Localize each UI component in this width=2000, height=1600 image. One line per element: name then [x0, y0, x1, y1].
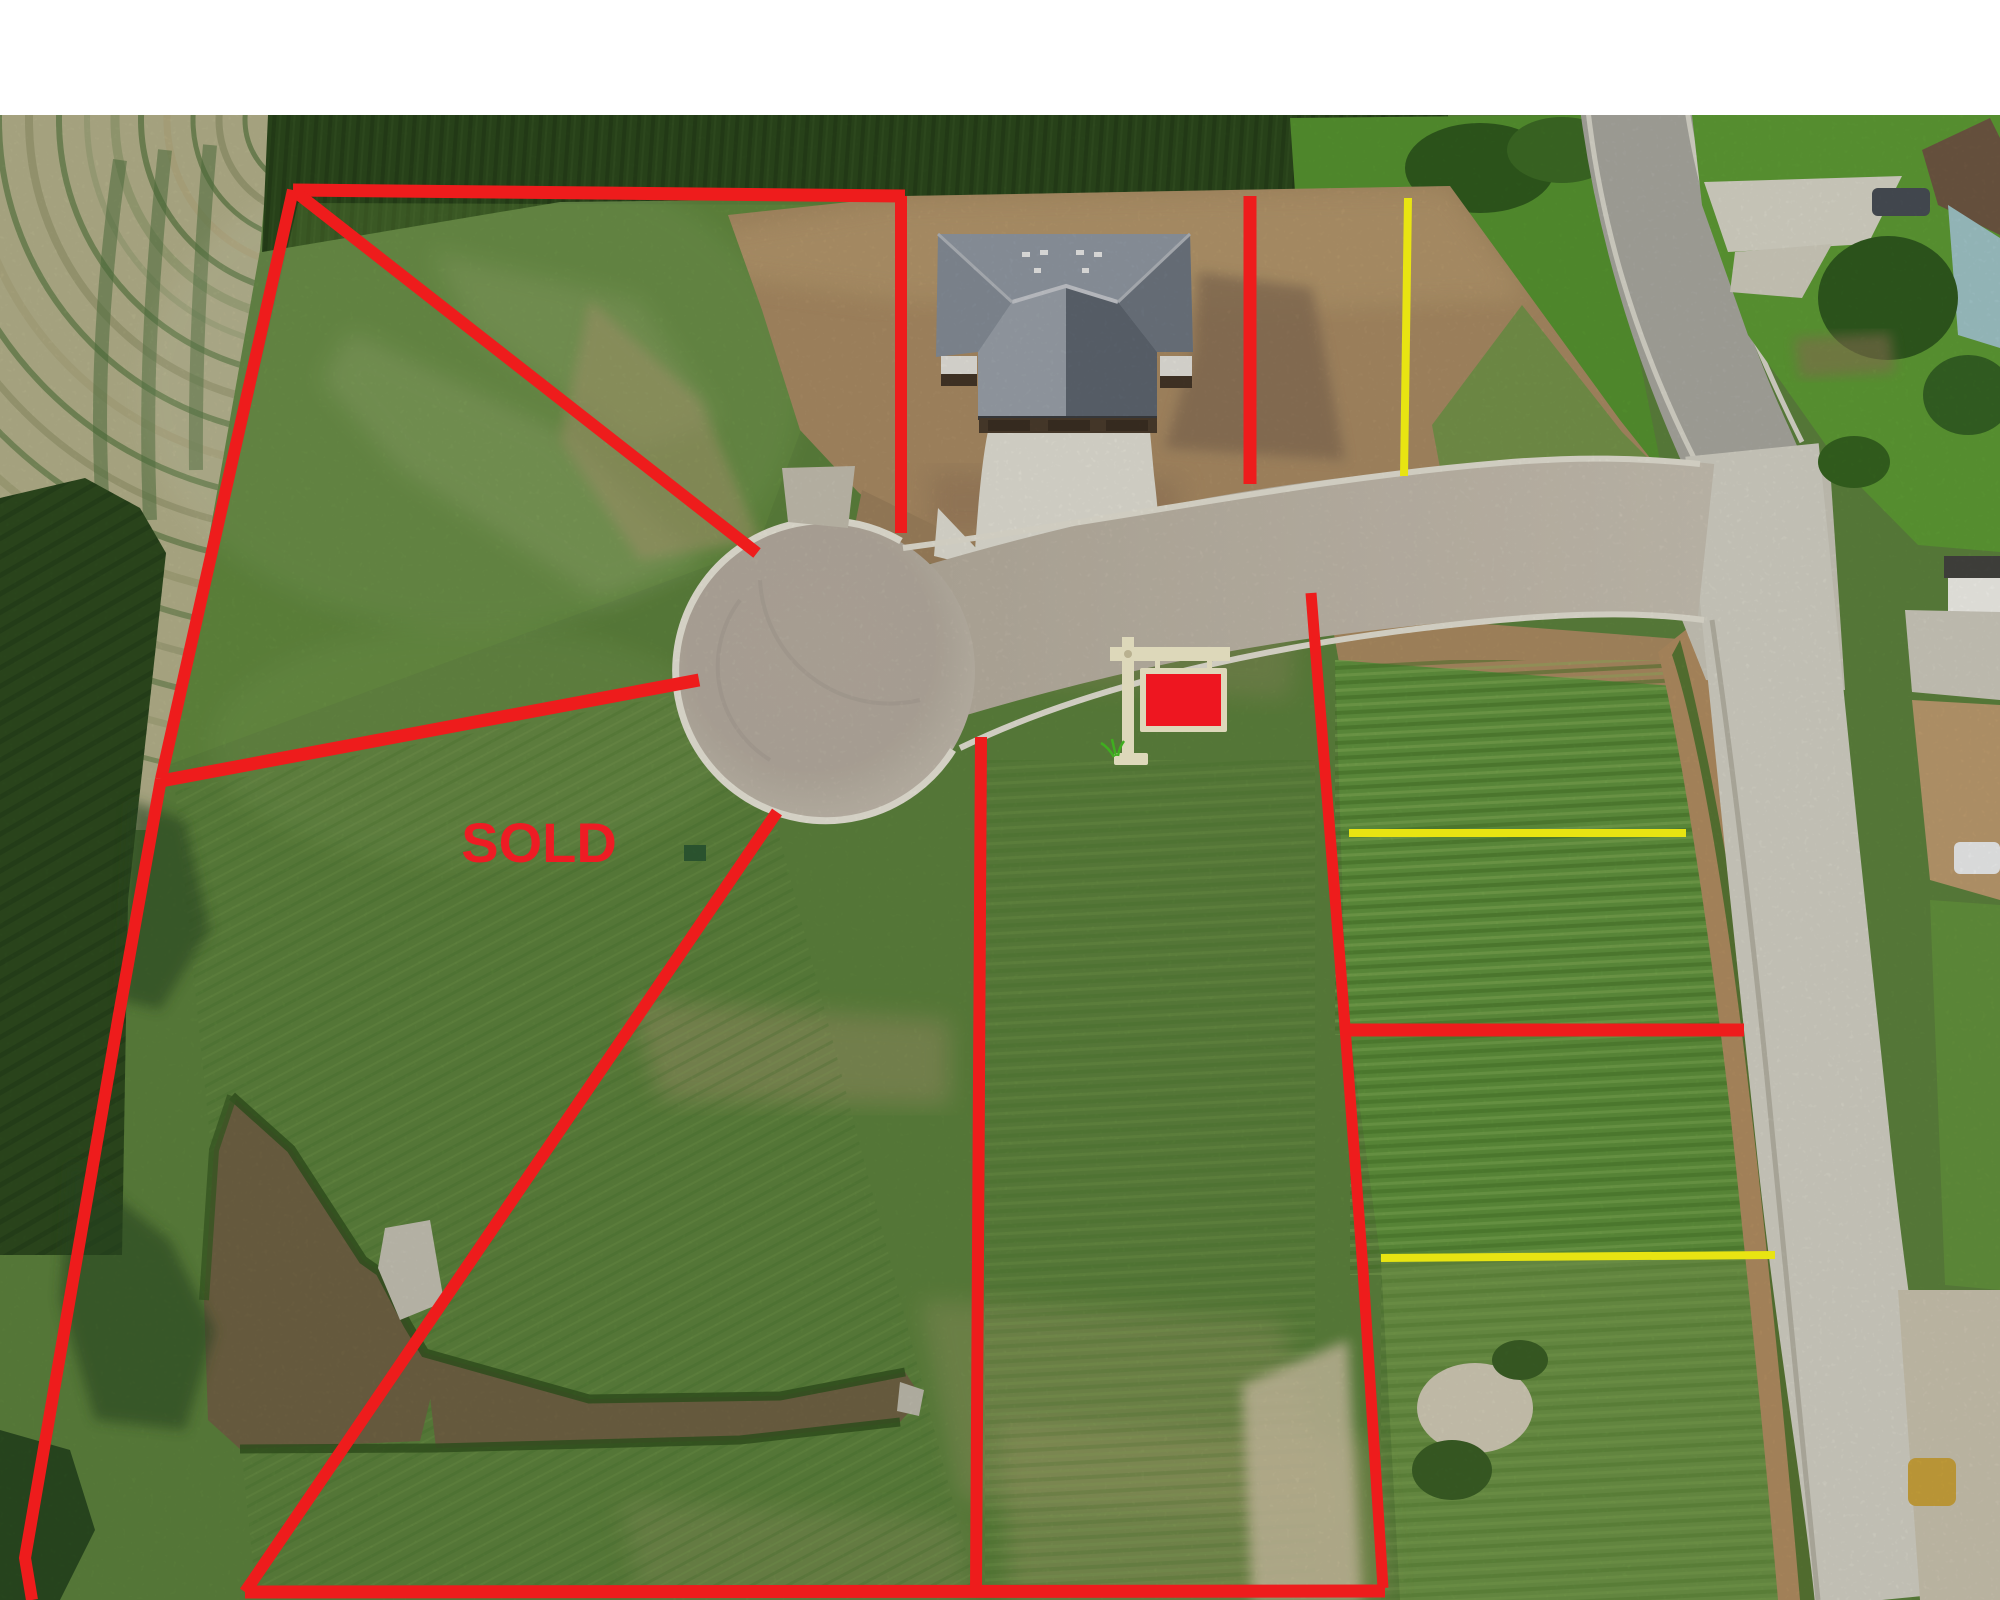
svg-text:SOLD: SOLD [461, 811, 617, 874]
